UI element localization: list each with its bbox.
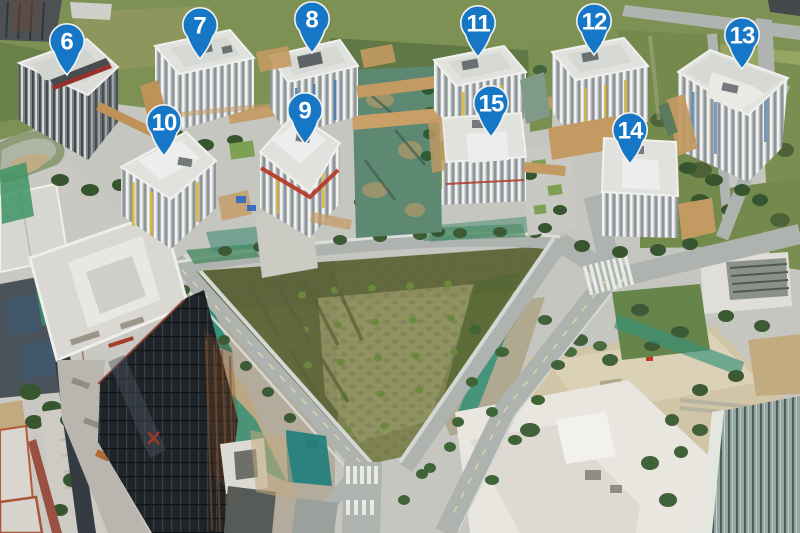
svg-text:8: 8	[305, 7, 318, 34]
svg-text:7: 7	[193, 13, 206, 40]
svg-text:12: 12	[582, 9, 607, 36]
svg-text:10: 10	[152, 110, 177, 137]
svg-text:14: 14	[618, 118, 644, 145]
svg-text:6: 6	[60, 29, 73, 56]
svg-text:11: 11	[466, 11, 490, 38]
svg-text:13: 13	[730, 23, 755, 50]
svg-text:15: 15	[479, 91, 504, 118]
svg-text:9: 9	[298, 98, 311, 125]
